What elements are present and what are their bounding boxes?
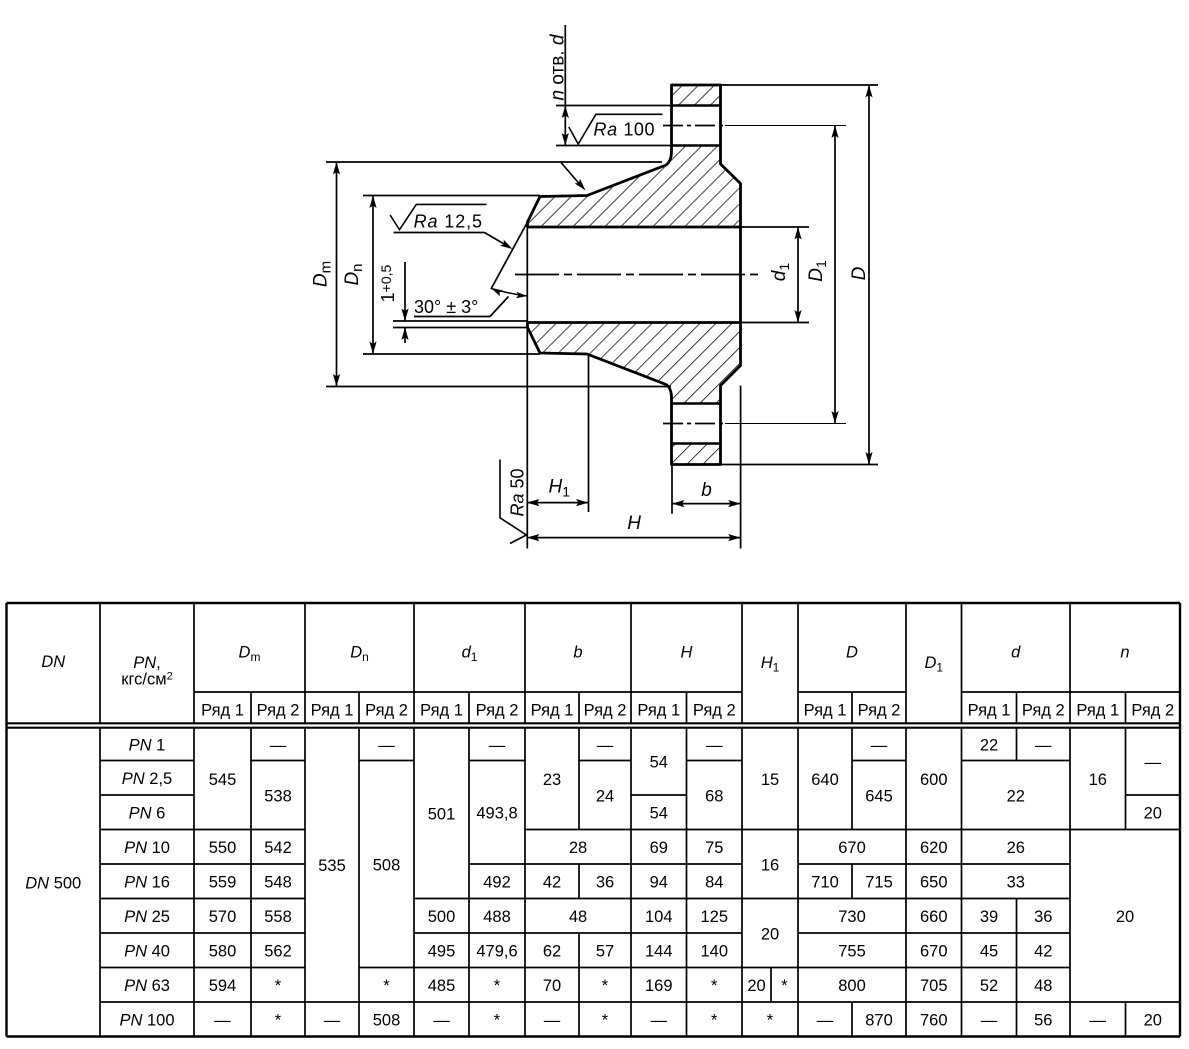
svg-text:b: b [701, 480, 712, 501]
svg-text:23: 23 [543, 771, 561, 789]
svg-text:54: 54 [650, 805, 668, 823]
svg-text:22: 22 [980, 736, 998, 754]
svg-text:495: 495 [428, 943, 456, 961]
svg-text:493,8: 493,8 [476, 805, 517, 823]
svg-text:84: 84 [705, 874, 723, 892]
svg-text:*: * [383, 977, 390, 995]
svg-text:558: 558 [264, 908, 292, 926]
svg-text:—: — [544, 1012, 561, 1030]
svg-text:PN 100: PN 100 [119, 1012, 174, 1030]
svg-text:48: 48 [1034, 977, 1052, 995]
svg-text:15: 15 [761, 771, 779, 789]
svg-text:545: 545 [209, 771, 237, 789]
svg-text:DN: DN [41, 653, 65, 671]
svg-text:PN 2,5: PN 2,5 [122, 770, 172, 788]
svg-text:69: 69 [650, 839, 668, 857]
svg-text:479,6: 479,6 [476, 943, 517, 961]
svg-text:*: * [602, 1012, 609, 1030]
svg-text:D: D [846, 644, 858, 662]
svg-text:—: — [981, 1012, 998, 1030]
svg-text:70: 70 [543, 977, 561, 995]
svg-text:PN 16: PN 16 [124, 874, 170, 892]
svg-text:PN,: PN, [133, 654, 161, 672]
svg-text:PN 10: PN 10 [124, 839, 170, 857]
svg-text:Ряд 1: Ряд 1 [420, 702, 463, 720]
svg-text:39: 39 [980, 908, 998, 926]
svg-text:PN 25: PN 25 [124, 908, 170, 926]
svg-text:—: — [706, 736, 723, 754]
svg-text:D: D [849, 266, 870, 280]
svg-text:20: 20 [1144, 805, 1162, 823]
svg-text:Ряд 1: Ряд 1 [1076, 702, 1119, 720]
svg-text:Ряд 1: Ряд 1 [531, 702, 574, 720]
svg-text:33: 33 [1007, 874, 1025, 892]
svg-text:45: 45 [980, 943, 998, 961]
svg-text:PN 40: PN 40 [124, 943, 170, 961]
svg-text:760: 760 [920, 1012, 948, 1030]
svg-text:PN 6: PN 6 [129, 805, 166, 823]
svg-text:Ряд 1: Ряд 1 [968, 702, 1011, 720]
svg-text:488: 488 [483, 908, 511, 926]
svg-text:42: 42 [1034, 943, 1052, 961]
svg-text:594: 594 [209, 977, 237, 995]
svg-text:Ряд 2: Ряд 2 [365, 702, 408, 720]
svg-text:Ряд 1: Ряд 1 [311, 702, 354, 720]
svg-text:H: H [627, 513, 641, 534]
svg-text:508: 508 [373, 856, 401, 874]
svg-text:500: 500 [428, 908, 456, 926]
svg-text:36: 36 [1034, 908, 1052, 926]
svg-text:75: 75 [705, 839, 723, 857]
svg-text:*: * [711, 977, 718, 995]
svg-text:—: — [433, 1012, 450, 1030]
svg-text:20: 20 [1144, 1012, 1162, 1030]
svg-text:*: * [494, 977, 501, 995]
svg-text:*: * [781, 977, 788, 995]
svg-text:*: * [711, 1012, 718, 1030]
svg-text:715: 715 [865, 874, 893, 892]
svg-text:670: 670 [920, 943, 948, 961]
svg-text:Ra 100: Ra 100 [594, 119, 656, 139]
svg-text:—: — [270, 736, 287, 754]
svg-text:870: 870 [865, 1012, 893, 1030]
svg-text:Ряд 2: Ряд 2 [1131, 702, 1174, 720]
svg-text:28: 28 [569, 839, 587, 857]
svg-text:36: 36 [596, 874, 614, 892]
svg-text:PN 1: PN 1 [129, 736, 166, 754]
svg-text:*: * [275, 1012, 282, 1030]
svg-text:Ряд 2: Ряд 2 [693, 702, 736, 720]
svg-text:Ra 50: Ra 50 [508, 468, 528, 516]
svg-text:670: 670 [838, 839, 866, 857]
svg-text:620: 620 [920, 839, 948, 857]
svg-text:169: 169 [645, 977, 673, 995]
svg-text:*: * [494, 1012, 501, 1030]
svg-text:800: 800 [838, 977, 866, 995]
svg-text:22: 22 [1007, 787, 1025, 805]
svg-text:—: — [378, 736, 395, 754]
svg-text:Ряд 2: Ряд 2 [858, 702, 901, 720]
svg-text:*: * [767, 1012, 774, 1030]
svg-text:144: 144 [645, 943, 673, 961]
svg-text:508: 508 [373, 1012, 401, 1030]
svg-text:570: 570 [209, 908, 237, 926]
svg-text:56: 56 [1034, 1012, 1052, 1030]
svg-text:—: — [597, 736, 614, 754]
svg-text:H: H [681, 644, 693, 662]
svg-text:20: 20 [747, 977, 765, 995]
svg-text:16: 16 [1089, 771, 1107, 789]
svg-text:—: — [1145, 754, 1162, 772]
svg-text:730: 730 [838, 908, 866, 926]
svg-text:548: 548 [264, 874, 292, 892]
svg-text:Ряд 2: Ряд 2 [476, 702, 519, 720]
svg-text:125: 125 [700, 908, 728, 926]
svg-text:—: — [1090, 1012, 1107, 1030]
svg-text:—: — [651, 1012, 668, 1030]
svg-text:26: 26 [1007, 839, 1025, 857]
svg-text:20: 20 [761, 925, 779, 943]
svg-text:650: 650 [920, 874, 948, 892]
svg-text:550: 550 [209, 839, 237, 857]
svg-text:559: 559 [209, 874, 237, 892]
svg-text:—: — [817, 1012, 834, 1030]
svg-text:—: — [871, 736, 888, 754]
svg-text:57: 57 [596, 943, 614, 961]
svg-text:—: — [324, 1012, 341, 1030]
svg-text:94: 94 [650, 874, 668, 892]
svg-text:542: 542 [264, 839, 292, 857]
svg-text:705: 705 [920, 977, 948, 995]
svg-text:54: 54 [650, 754, 668, 772]
svg-text:*: * [602, 977, 609, 995]
svg-text:501: 501 [428, 805, 456, 823]
svg-text:710: 710 [811, 874, 839, 892]
svg-text:Ряд 2: Ряд 2 [584, 702, 627, 720]
svg-text:Ряд 1: Ряд 1 [637, 702, 680, 720]
svg-text:30° ± 3°: 30° ± 3° [414, 297, 478, 317]
svg-text:538: 538 [264, 787, 292, 805]
svg-text:485: 485 [428, 977, 456, 995]
svg-text:Ряд 2: Ряд 2 [1022, 702, 1065, 720]
svg-text:52: 52 [980, 977, 998, 995]
svg-text:20: 20 [1116, 908, 1134, 926]
svg-text:—: — [1035, 736, 1052, 754]
svg-text:b: b [573, 644, 582, 662]
svg-text:48: 48 [569, 908, 587, 926]
svg-text:24: 24 [596, 787, 614, 805]
svg-text:16: 16 [761, 856, 779, 874]
svg-text:Ряд 1: Ряд 1 [804, 702, 847, 720]
svg-text:645: 645 [865, 787, 893, 805]
svg-text:660: 660 [920, 908, 948, 926]
svg-text:n отв. d: n отв. d [548, 33, 569, 100]
svg-text:d: d [1011, 644, 1021, 662]
svg-text:104: 104 [645, 908, 673, 926]
svg-text:640: 640 [811, 771, 839, 789]
svg-text:492: 492 [483, 874, 511, 892]
svg-text:580: 580 [209, 943, 237, 961]
svg-text:755: 755 [838, 943, 866, 961]
svg-text:535: 535 [318, 857, 346, 875]
svg-text:68: 68 [705, 787, 723, 805]
svg-text:62: 62 [543, 943, 561, 961]
svg-text:n: n [1120, 644, 1129, 662]
svg-text:600: 600 [920, 771, 948, 789]
svg-text:—: — [489, 736, 506, 754]
svg-text:кгс/см2: кгс/см2 [121, 671, 172, 689]
svg-text:42: 42 [543, 874, 561, 892]
svg-text:—: — [214, 1012, 231, 1030]
svg-text:Ряд 2: Ряд 2 [257, 702, 300, 720]
svg-text:Ряд 1: Ряд 1 [201, 702, 244, 720]
svg-text:PN 63: PN 63 [124, 977, 170, 995]
svg-text:Ra 12,5: Ra 12,5 [414, 212, 483, 232]
svg-text:562: 562 [264, 943, 292, 961]
svg-text:140: 140 [700, 943, 728, 961]
svg-text:*: * [275, 977, 282, 995]
svg-text:DN 500: DN 500 [25, 874, 81, 892]
